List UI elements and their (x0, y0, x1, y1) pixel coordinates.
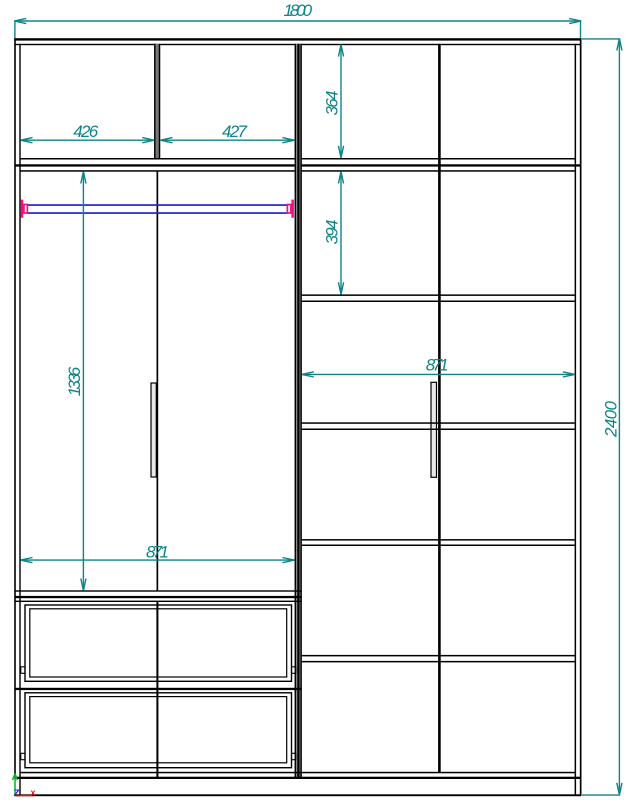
svg-text:364: 364 (322, 91, 341, 116)
svg-text:x: x (30, 788, 35, 798)
svg-text:2400: 2400 (601, 400, 620, 438)
svg-text:1336: 1336 (65, 366, 84, 396)
svg-text:426: 426 (73, 122, 99, 141)
svg-text:871: 871 (146, 542, 169, 561)
svg-text:1800: 1800 (284, 1, 313, 20)
svg-text:394: 394 (322, 220, 341, 245)
svg-text:871: 871 (426, 356, 449, 375)
svg-text:427: 427 (222, 122, 248, 141)
svg-text:Z: Z (14, 788, 20, 799)
